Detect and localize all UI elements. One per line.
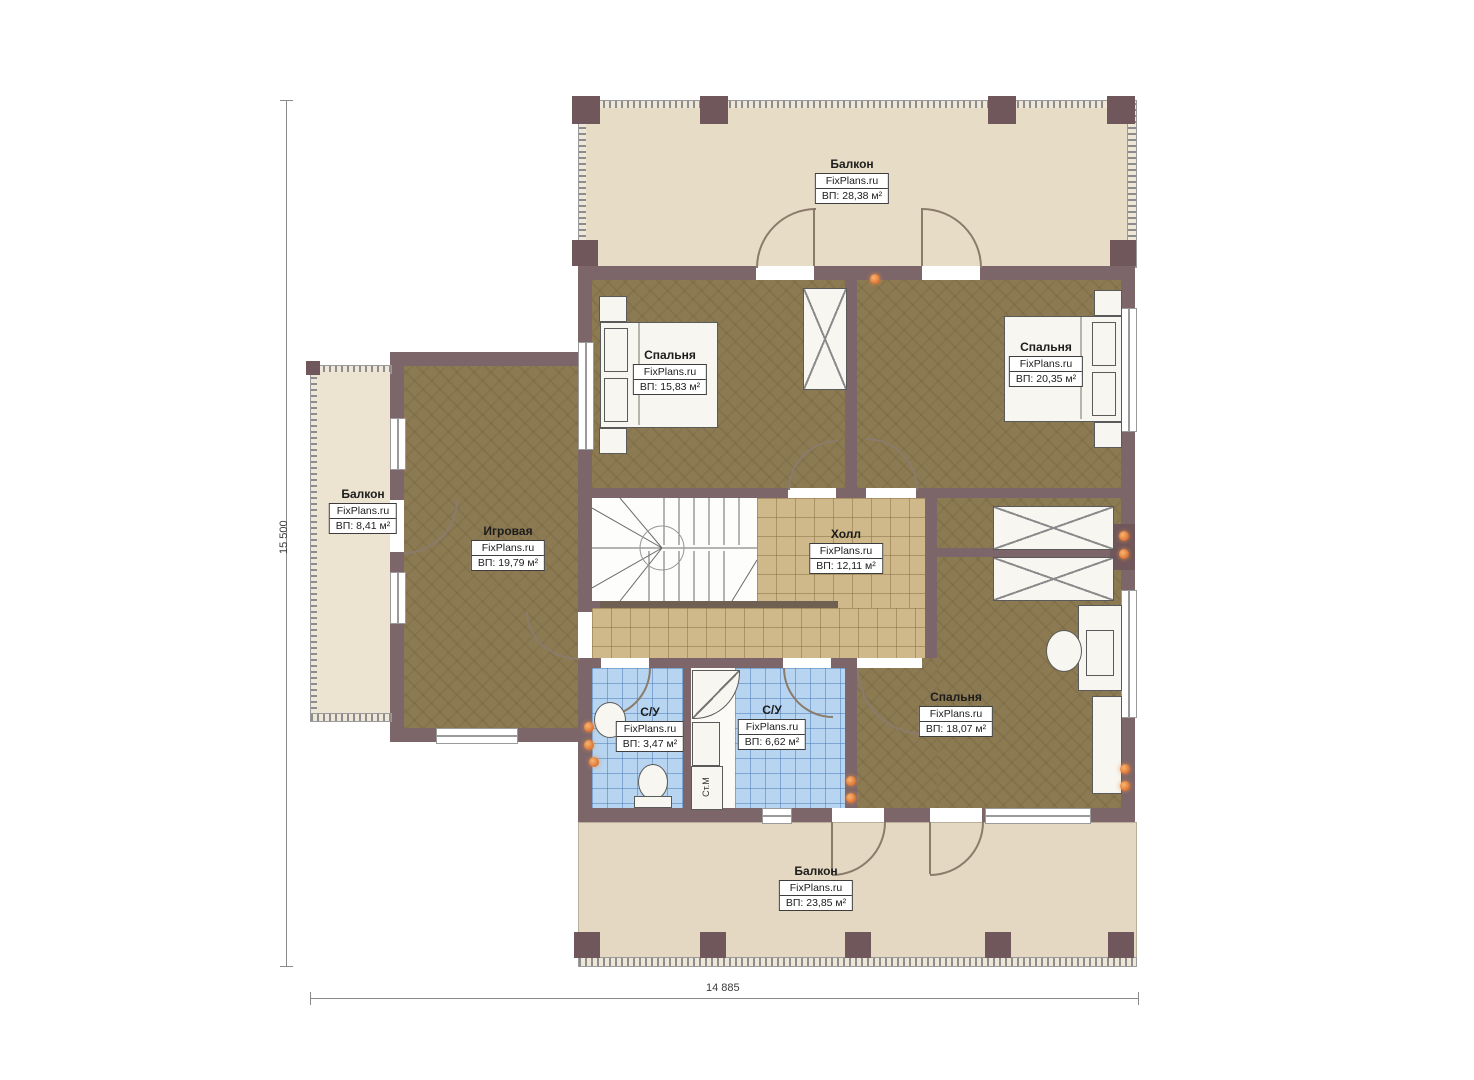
wall-under-bed1b	[836, 488, 866, 498]
lamp-dot	[846, 793, 856, 803]
room-brand: FixPlans.ru	[780, 881, 852, 895]
room-title: Спальня	[919, 690, 993, 704]
lamp-dot	[1119, 549, 1129, 559]
nightstand	[1094, 290, 1122, 316]
door-leaf	[921, 208, 923, 266]
nightstand	[599, 296, 627, 322]
room-area: ВП: 12,11 м²	[810, 558, 882, 573]
room-area: ВП: 6,62 м²	[739, 734, 805, 749]
room-area: ВП: 18,07 м²	[920, 721, 992, 736]
door-leaf	[813, 208, 815, 266]
room-brand: FixPlans.ru	[920, 707, 992, 721]
room-title: Холл	[809, 527, 883, 541]
dim-height-label: 15 500	[278, 520, 290, 554]
door-opening	[832, 808, 884, 822]
balcony-pillar	[700, 932, 726, 958]
window-bedroom2	[1121, 308, 1137, 432]
nightstand	[599, 428, 627, 454]
door-opening	[756, 266, 814, 280]
room-brand: FixPlans.ru	[739, 720, 805, 734]
lamp-dot	[846, 776, 856, 786]
lamp-dot	[589, 757, 599, 767]
room-area: ВП: 28,38 м²	[816, 188, 888, 203]
wardrobe-bedroom3-top	[993, 506, 1114, 550]
room-area: ВП: 8,41 м²	[330, 518, 396, 533]
balcony-pillar	[845, 932, 871, 958]
lamp-dot	[584, 740, 594, 750]
bath-cabinet	[692, 722, 720, 766]
wall-hall-bed3	[925, 498, 937, 658]
room-brand: FixPlans.ru	[810, 544, 882, 558]
corridor-floor	[592, 608, 925, 658]
balcony-left-railing-bottom	[310, 713, 392, 722]
room-label-balcony-top: Балкон FixPlans.ru ВП: 28,38 м²	[815, 157, 889, 204]
window-south-small	[762, 808, 792, 824]
room-title: Спальня	[633, 348, 707, 362]
staircase-drawing	[592, 498, 757, 601]
lamp-dot	[1120, 764, 1130, 774]
washing-machine-label: Ст.М	[701, 777, 711, 797]
room-title: Балкон	[329, 487, 397, 501]
room-brand: FixPlans.ru	[330, 504, 396, 518]
room-brand: FixPlans.ru	[816, 174, 888, 188]
pillow	[1092, 322, 1116, 366]
floor-plan-canvas: Ст.М Балкон FixPlans.ru ВП: 28,38 м² Спа…	[0, 0, 1474, 1080]
balcony-pillar	[1108, 932, 1134, 958]
wall-under-bed2	[916, 488, 1121, 498]
dim-tick	[280, 100, 293, 101]
window-playroom-south	[436, 728, 518, 744]
door-opening	[922, 266, 980, 280]
wardrobe-bedroom1	[803, 288, 847, 390]
wardrobe-bedroom3-bottom	[993, 557, 1114, 601]
door-opening	[578, 612, 592, 658]
room-label-balcony-bottom: Балкон FixPlans.ru ВП: 23,85 м²	[779, 864, 853, 911]
room-title: Игровая	[471, 524, 545, 538]
balcony-pillar	[700, 96, 728, 124]
pillow	[604, 328, 628, 372]
desk-monitor	[1086, 630, 1114, 676]
room-brand: FixPlans.ru	[634, 365, 706, 379]
room-title: С/У	[616, 705, 684, 719]
room-label-wc-2: С/У FixPlans.ru ВП: 6,62 м²	[738, 703, 806, 750]
sideboard	[1092, 696, 1122, 794]
door-leaf	[929, 822, 931, 874]
room-brand: FixPlans.ru	[472, 541, 544, 555]
room-label-balcony-left: Балкон FixPlans.ru ВП: 8,41 м²	[329, 487, 397, 534]
balcony-pillar	[985, 932, 1011, 958]
window-bedroom3	[1121, 590, 1137, 718]
room-brand: FixPlans.ru	[617, 722, 683, 736]
room-label-bedroom-1: Спальня FixPlans.ru ВП: 15,83 м²	[633, 348, 707, 395]
room-label-hall: Холл FixPlans.ru ВП: 12,11 м²	[809, 527, 883, 574]
room-label-wc-1: С/У FixPlans.ru ВП: 3,47 м²	[616, 705, 684, 752]
desk-chair	[1046, 630, 1082, 672]
room-label-playroom: Игровая FixPlans.ru ВП: 19,79 м²	[471, 524, 545, 571]
balcony-left-floor	[317, 372, 390, 713]
door-opening	[601, 658, 649, 668]
lamp-dot	[584, 722, 594, 732]
balcony-pillar	[1107, 96, 1135, 124]
wall-under-bed1	[592, 488, 788, 498]
dim-tick	[1138, 992, 1139, 1005]
staircase	[592, 498, 757, 601]
room-area: ВП: 3,47 м²	[617, 736, 683, 751]
balcony-pillar	[574, 932, 600, 958]
room-title: С/У	[738, 703, 806, 717]
room-label-bedroom-3: Спальня FixPlans.ru ВП: 18,07 м²	[919, 690, 993, 737]
room-brand: FixPlans.ru	[1010, 357, 1082, 371]
room-area: ВП: 15,83 м²	[634, 379, 706, 394]
window-playroom-1	[390, 418, 406, 470]
lamp-dot	[1120, 781, 1130, 791]
dim-tick	[280, 966, 293, 967]
room-area: ВП: 19,79 м²	[472, 555, 544, 570]
dim-width-label: 14 885	[706, 982, 740, 994]
toilet-bowl	[638, 764, 668, 800]
balcony-bottom-railing	[578, 957, 1137, 967]
stair-railing	[600, 601, 838, 608]
dim-tick	[310, 992, 311, 1005]
toilet-tank	[634, 796, 672, 808]
room-title: Балкон	[815, 157, 889, 171]
balcony-pillar	[306, 361, 320, 375]
balcony-pillar	[1110, 240, 1136, 266]
room-title: Балкон	[779, 864, 853, 878]
window-playroom-2	[390, 572, 406, 624]
lamp-dot	[1119, 531, 1129, 541]
balcony-pillar	[572, 96, 600, 124]
room-label-bedroom-2: Спальня FixPlans.ru ВП: 20,35 м²	[1009, 340, 1083, 387]
door-opening	[857, 658, 922, 668]
door-opening	[930, 808, 982, 822]
window-bedroom3-south	[985, 808, 1091, 824]
balcony-pillar	[988, 96, 1016, 124]
room-area: ВП: 20,35 м²	[1010, 371, 1082, 386]
room-area: ВП: 23,85 м²	[780, 895, 852, 910]
nightstand	[1094, 422, 1122, 448]
dim-line-horizontal	[310, 998, 1138, 999]
door-opening	[783, 658, 831, 668]
lamp-dot	[870, 274, 880, 284]
window-bedroom1	[578, 342, 594, 450]
room-title: Спальня	[1009, 340, 1083, 354]
balcony-pillar	[572, 240, 598, 266]
pillow	[1092, 372, 1116, 416]
pillow	[604, 378, 628, 422]
